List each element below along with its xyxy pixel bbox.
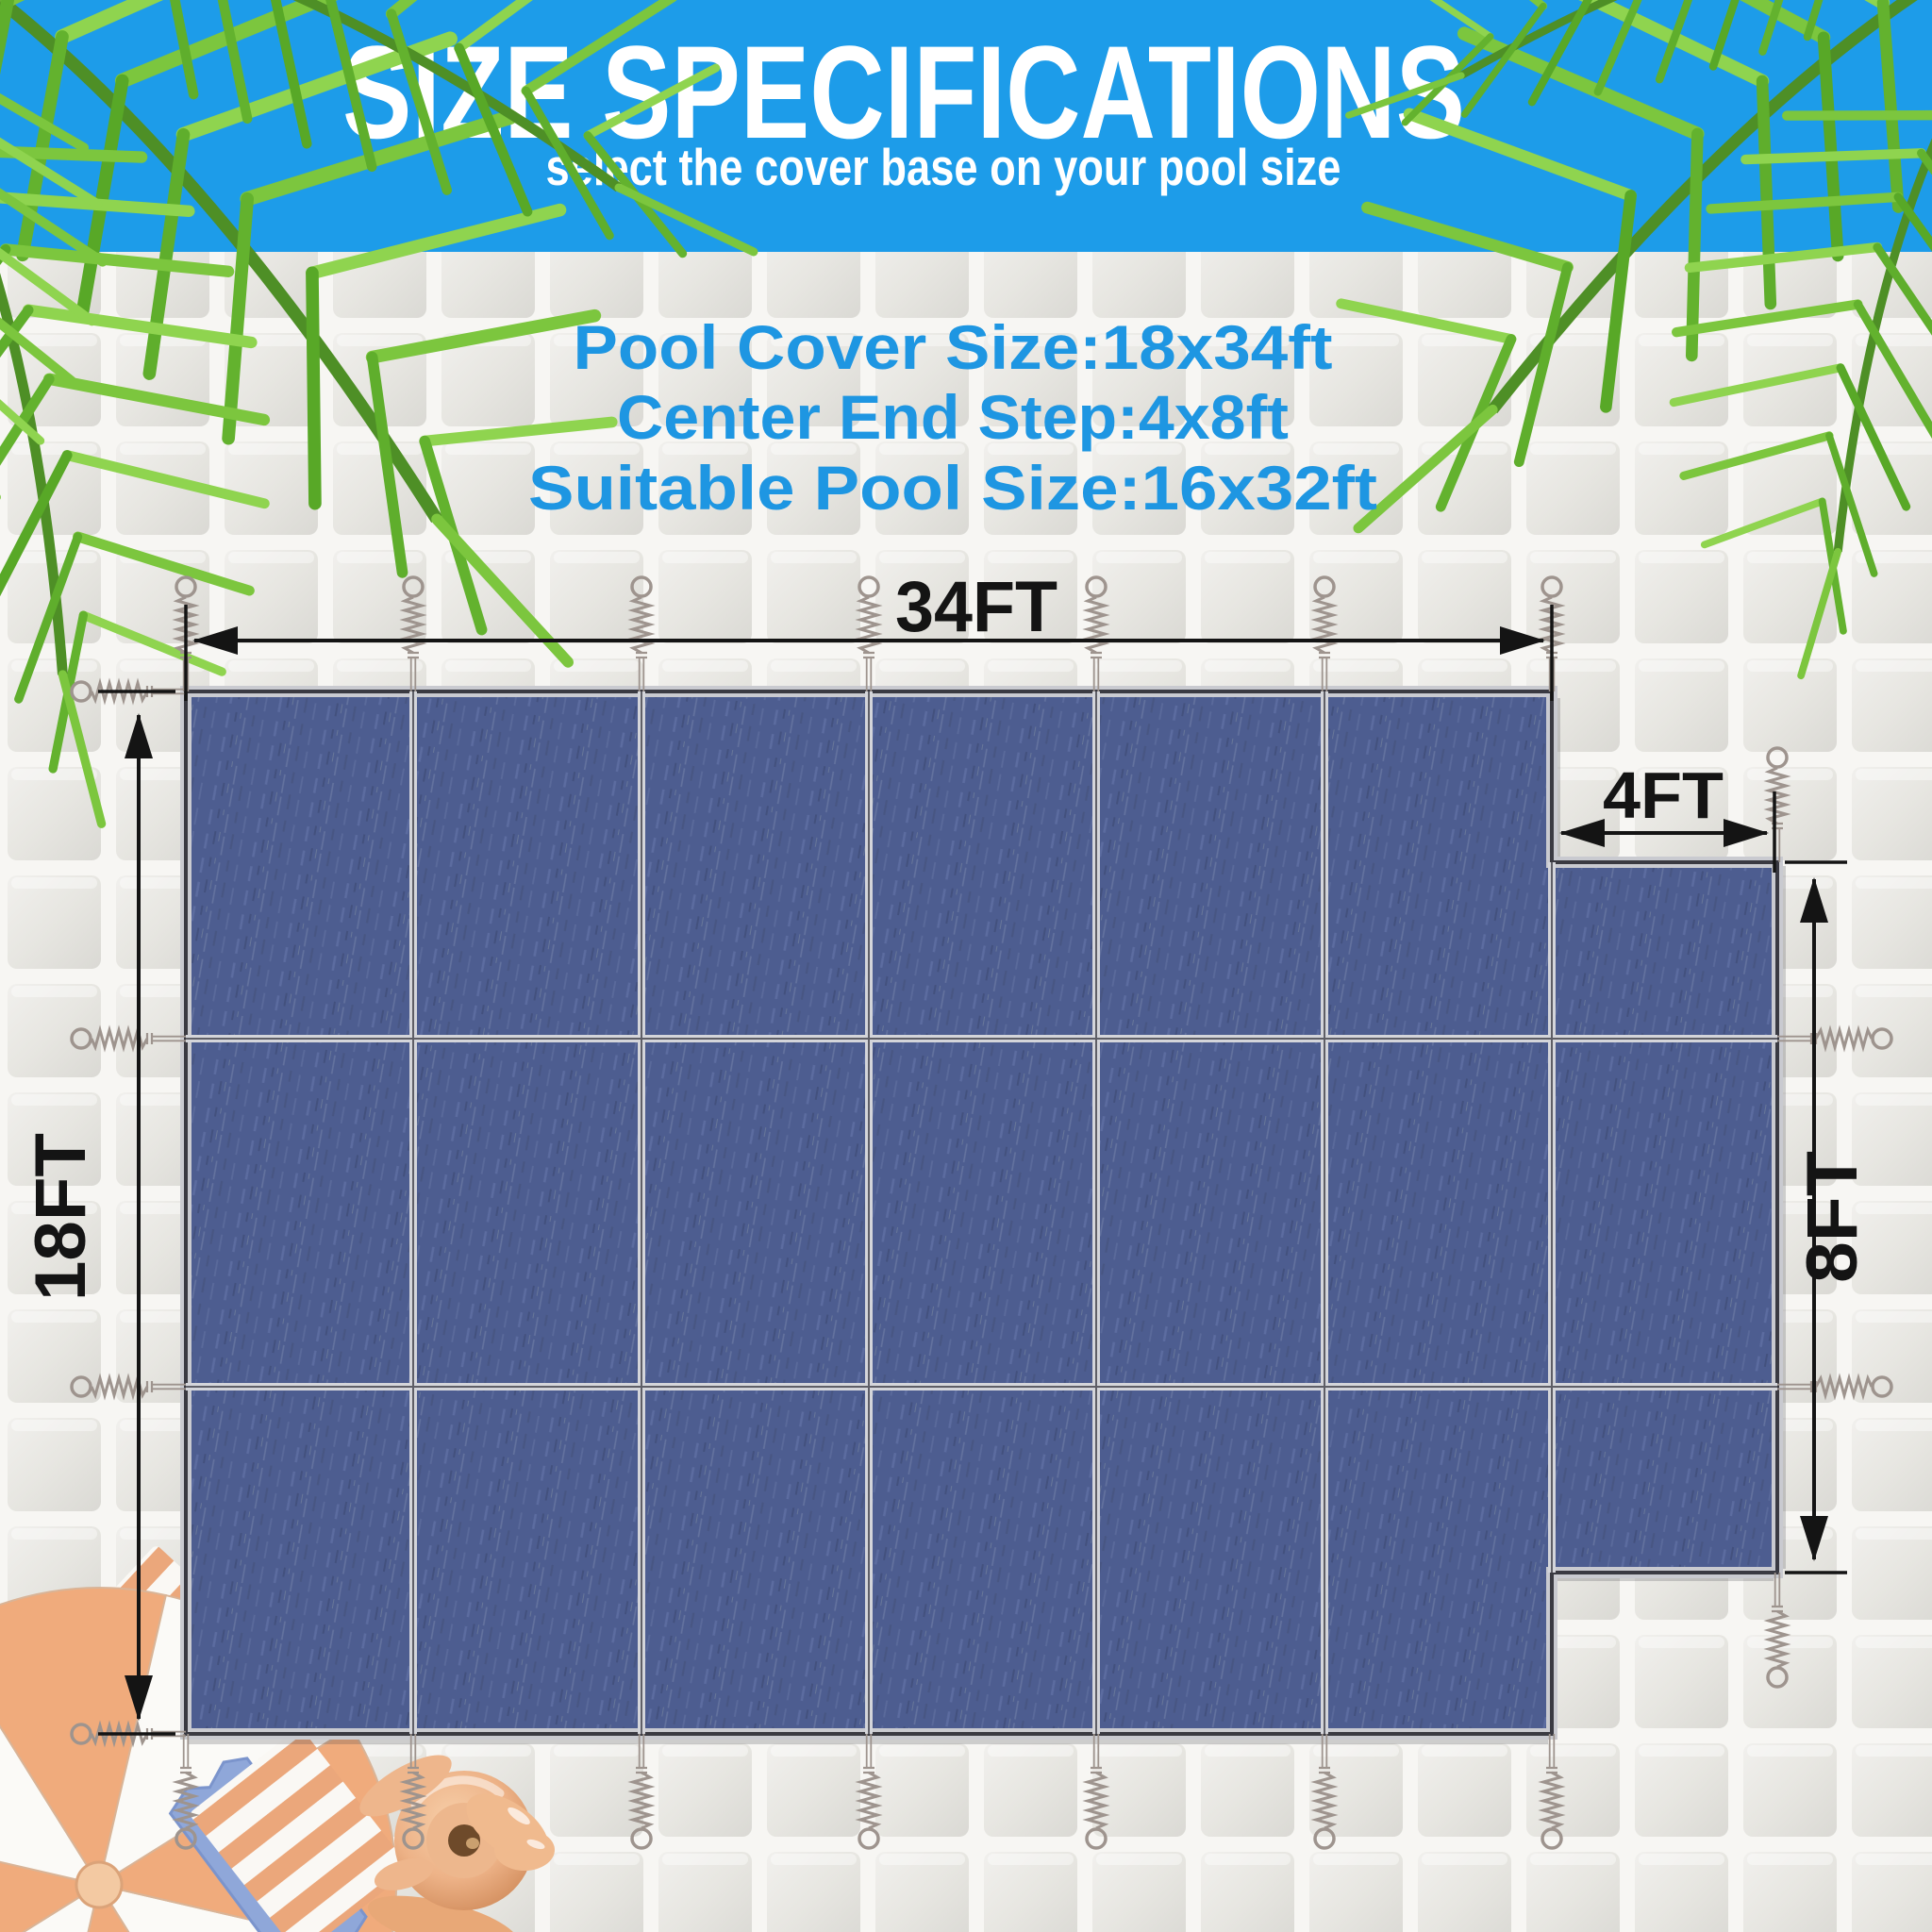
infographic-canvas: SIZE SPECIFICATIONS select the cover bas… [0,0,1932,1932]
cover-height-label: 18FT [21,1133,101,1301]
pool-cover-size-infographic: SIZE SPECIFICATIONS select the cover bas… [0,0,1932,1932]
header-banner: SIZE SPECIFICATIONS select the cover bas… [0,0,1932,252]
pool-cover-shape [186,691,1777,1734]
cover-width-label: 34FT [895,567,1058,647]
spec-suitable-pool-size: Suitable Pool Size:16x32ft [528,453,1377,523]
page-subtitle: select the cover base on your pool size [546,138,1341,196]
step-width-label: 4FT [1603,758,1724,832]
spec-text-block: Pool Cover Size:18x34ft Center End Step:… [528,312,1377,523]
spec-center-end-step: Center End Step:4x8ft [617,382,1289,452]
spec-pool-cover-size: Pool Cover Size:18x34ft [574,312,1333,382]
step-height-label: 8FT [1792,1151,1873,1283]
